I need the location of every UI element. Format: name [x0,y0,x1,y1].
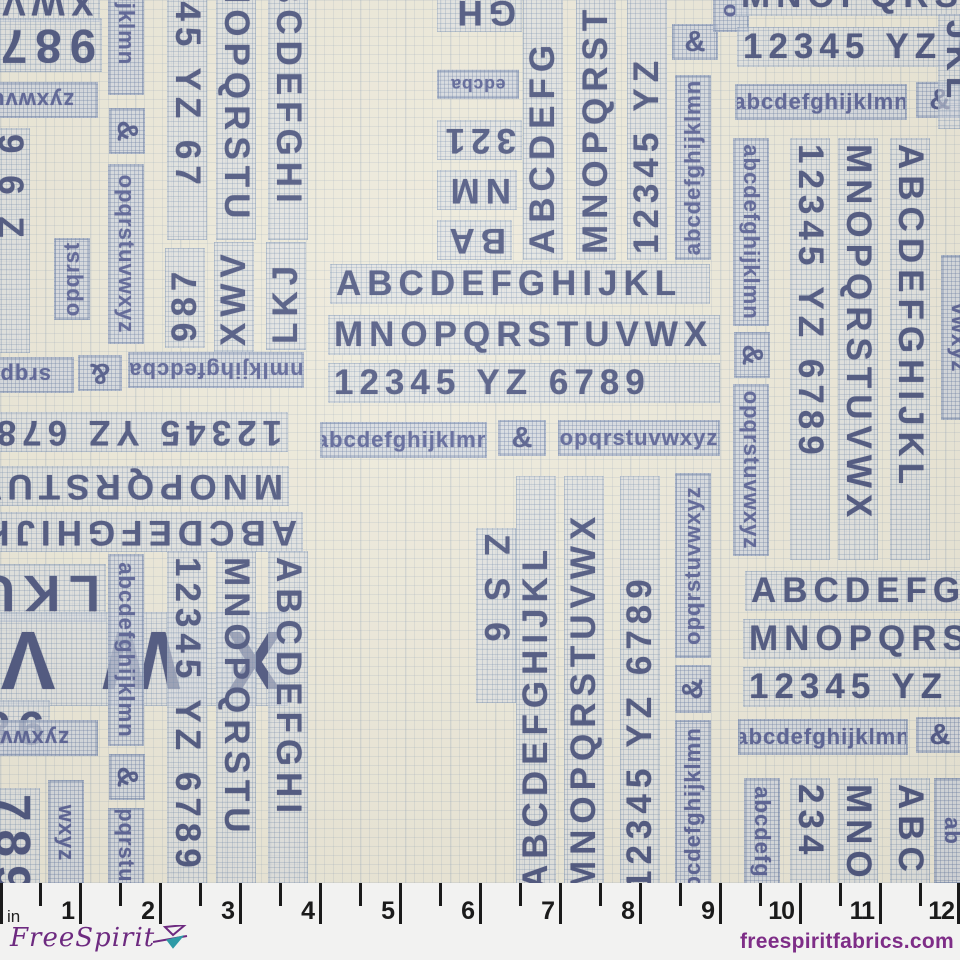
pattern-strip: NOPQRSTU [216,0,256,240]
pattern-strip: ABCDEFGHIJKL [0,512,303,552]
ruler-number: 8 [598,897,634,926]
ruler-number: 11 [838,897,874,926]
fabric-product-image: XWV987zyxwvut9 6 Zabcdefghijklmn&opqrstu… [0,0,960,960]
pattern-strip: ABCDEFGHIJKL [516,476,556,883]
pattern-strip: GH [437,0,522,32]
ruler-tick-inch [159,883,162,924]
pattern-strip: opqrstuvwxyz [108,808,144,883]
pattern-strip: 12345 YZ [627,0,667,260]
pattern-strip: 12345 YZ 6789 [328,363,720,403]
pattern-strip: 345 YZ 67 [167,0,207,240]
pattern-strip: zyxwvu [0,720,98,756]
ruler-number: 4 [278,897,314,926]
ruler-number: 12 [918,897,954,926]
pattern-strip: LKJ [266,242,306,350]
pattern-strip: opqrst [54,238,90,320]
pattern-strip: MNOPQRSTUVWX [564,476,604,883]
pattern-strip: ABCDEFGHIJKL [890,138,930,560]
ruler-tick-inch [399,883,402,924]
pattern-strip: nmlkjihgfedcba [128,352,304,388]
pattern-strip: 987 [0,18,102,72]
pattern-strip: JKL [938,14,960,129]
pattern-strip: 9 6 Z [0,128,30,353]
pattern-strip: abcdefghijklmn [675,75,711,260]
pattern-strip: 12345 YZ 6789 [620,476,660,883]
pattern-strip: abcdefghijklmn [738,719,908,755]
pattern-strip: MNOPQRSTUVWX [735,0,960,16]
freespirit-logo: FreeSpirit [10,923,189,958]
pattern-strip: zyxwvut [0,82,98,118]
pattern-strip: 12345 YZ 6789 [0,412,288,452]
pattern-strip: MNOPQRSTU [216,551,256,883]
ruler-number: 5 [358,897,394,926]
pattern-strip: XWV [214,242,254,352]
pattern-strip: MNOPQRSTUVWX [328,315,720,355]
pattern-strip: abcdefghijklmn [108,0,144,95]
pattern-strip: abcdefghijklmn [733,138,769,326]
pattern-strip: 12345 YZ 6789 [790,138,830,560]
pattern-strip: ABC [890,778,930,883]
pattern-strip: 12345 YZ [743,667,960,707]
pattern-strip: opqrstuvwxyz [558,420,720,456]
ruler-tick-inch [0,883,3,924]
ruler-number: 2 [118,897,154,926]
ruler-number: 1 [38,897,74,926]
ruler-number: 3 [198,897,234,926]
pattern-strip: opqrstuvwxyz [675,473,711,658]
pattern-strip: wxyz [48,780,84,883]
pattern-strip: MNO [838,778,878,883]
pattern-strip: & [109,754,145,800]
ruler-number: 7 [518,897,554,926]
pattern-strip: ABCDEFGHI [268,551,308,883]
pattern-strip: abcdefghijklmn [675,720,711,883]
pattern-strip: BA [437,220,512,260]
pattern-strip: & [734,332,770,378]
pattern-strip: abcdefg [744,778,780,883]
ruler-tick-inch [479,883,482,924]
freespirit-logo-text: FreeSpirit [10,923,155,953]
pattern-strip: NM [437,170,517,210]
pattern-strip: & [916,717,960,753]
pattern-strip: srqpo [0,357,74,393]
pattern-strip: Z S 6 [476,528,516,703]
ruler-tick-inch [79,883,82,924]
pattern-strip: & [498,420,546,456]
pattern-strip: BCDEFGHI [268,0,308,240]
pattern-strip: ABCDEFGH [745,571,960,611]
ruler-tick-inch [559,883,562,924]
ruler-number: 6 [438,897,474,926]
pattern-strip: vwxyz [941,255,960,420]
pattern-strip: 234 [790,778,830,883]
fabric-swatch: XWV987zyxwvut9 6 Zabcdefghijklmn&opqrstu… [0,0,960,883]
pattern-strip: MNOPQRST [576,0,616,260]
pattern-strip: 789 [0,788,40,883]
ruler-tick-inch [879,883,882,924]
website-text: freespiritfabrics.com [740,930,954,954]
pattern-strip: 12345 YZ 6789 [737,27,960,67]
pattern-strip: 321 [437,120,522,160]
pattern-strip: & [672,24,718,60]
pattern-strip: 987 [165,248,205,348]
pattern-strip: abcdefghijklmn [735,84,907,120]
freespirit-bird-icon [153,925,189,958]
ruler-tick-inch [319,883,322,924]
pattern-strip: ABCDEFGHIJKL [330,264,710,304]
pattern-strip: abcdefghijklmn [320,422,487,458]
pattern-strip: MNOPQRSTU [743,619,960,659]
pattern-strip: abcdefghijklmn [108,554,144,746]
pattern-strip: opqrstuvwxyz [733,384,769,556]
pattern-strip: 12345 YZ 6789 [167,551,207,883]
pattern-strip: ab [934,778,960,883]
pattern-strip: & [675,665,711,713]
footer: in 123456789101112 FreeSpirit freespirit… [0,883,960,960]
ruler-tick-inch [719,883,722,924]
pattern-strip: MNOPQRSTUVWX [0,466,289,506]
pattern-strip: opqrstuvwxyz [108,164,144,344]
ruler-number: 9 [678,897,714,926]
pattern-strip: & [78,355,122,391]
pattern-strip: ABCDEFG [523,0,563,260]
pattern-strip: & [109,108,145,154]
pattern-strip: edcba [437,70,519,99]
ruler-tick-inch [799,883,802,924]
ruler-number: 10 [758,897,794,926]
pattern-strip: MNOPQRSTUVWX [838,138,878,560]
ruler-tick-inch [239,883,242,924]
ruler-tick-inch [639,883,642,924]
